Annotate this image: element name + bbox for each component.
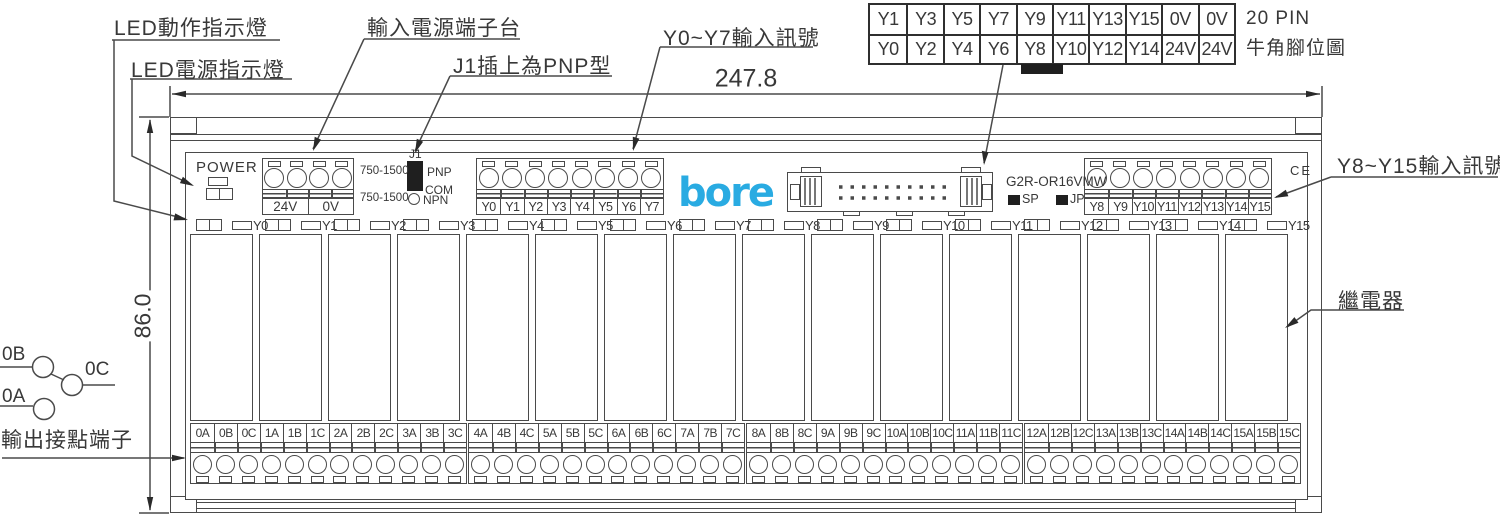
terminal-pad	[379, 476, 392, 483]
output-terminal: 1C	[306, 424, 329, 483]
output-terminal: 9B	[839, 424, 862, 483]
relay-box	[673, 234, 736, 421]
ce-mark: CE	[1290, 163, 1312, 178]
idc-bump-3	[948, 211, 965, 216]
output-terminal-label: 10A	[885, 424, 908, 443]
led-window	[1060, 221, 1080, 230]
pin-cell: 24V	[1198, 34, 1234, 63]
output-terminal: 0C	[237, 424, 260, 483]
terminal-pad	[196, 476, 209, 483]
output-terminal: 4A	[469, 424, 492, 483]
terminal-screw	[1001, 455, 1020, 474]
output-terminal-label: 0C	[237, 424, 260, 443]
terminal: Y12	[1178, 159, 1201, 214]
contact-no-circle	[34, 399, 55, 420]
terminal-screw	[1210, 455, 1229, 474]
output-terminal: 5A	[538, 424, 561, 483]
led-pair	[334, 219, 360, 231]
output-terminal: 5C	[584, 424, 607, 483]
terminal-clamp	[1048, 443, 1071, 453]
y8-y15-terminal-block: Y8 Y9 Y10 Y11 Y12	[1084, 158, 1272, 215]
terminal-pad	[657, 476, 670, 483]
pin-cell: Y6	[979, 34, 1015, 63]
terminal-screw	[932, 455, 951, 474]
output-terminal: 10A	[885, 424, 908, 483]
terminal-clamp	[331, 189, 354, 198]
pin-caption-line1: 20 PIN	[1246, 8, 1310, 30]
pin-table-notch	[1021, 64, 1063, 74]
output-terminal: 3B	[420, 424, 443, 483]
terminal-slot	[552, 161, 565, 167]
terminal-clamp	[1094, 443, 1117, 453]
terminal-clamp	[191, 443, 214, 453]
output-terminal: 2C	[374, 424, 397, 483]
terminal-pad	[265, 476, 278, 483]
terminal-pad	[333, 476, 346, 483]
led-pair	[472, 219, 498, 231]
terminal-clamp	[374, 443, 397, 453]
terminal-clamp	[839, 443, 862, 453]
pin-cell: Y12	[1088, 34, 1124, 63]
terminal-clamp	[907, 443, 930, 453]
pin-caption-line2: 牛角腳位圖	[1246, 33, 1346, 60]
led-pair	[1162, 219, 1188, 231]
terminal-label: Y7	[640, 198, 663, 214]
terminal: Y3	[547, 159, 570, 214]
terminal: Y15	[1248, 159, 1271, 214]
terminal-label: Y3	[547, 198, 570, 214]
input-power-terminal-block: 24V0V	[262, 158, 354, 215]
terminal-clamp	[1201, 189, 1224, 198]
terminal-clamp	[1085, 189, 1108, 198]
output-terminal-label: 2A	[329, 424, 352, 443]
led-window	[232, 221, 252, 230]
output-terminal: 5B	[561, 424, 584, 483]
output-terminal-label: 8B	[770, 424, 793, 443]
output-terminal: 7C	[721, 424, 744, 483]
led-window	[991, 221, 1011, 230]
terminal-clamp	[793, 443, 816, 453]
terminal-clamp	[1254, 443, 1277, 453]
terminal-screw	[376, 455, 395, 474]
output-terminal: 11B	[976, 424, 999, 483]
terminal-screw	[1073, 455, 1092, 474]
output-terminal-label: 12C	[1071, 424, 1094, 443]
terminal-screw	[955, 455, 974, 474]
pin-cell: Y7	[979, 5, 1015, 34]
power-led-lens	[208, 177, 228, 186]
output-terminal: 12A	[1025, 424, 1048, 483]
terminal-pad	[1213, 476, 1226, 483]
terminal-label: Y14	[1225, 198, 1248, 214]
terminal-screw	[772, 455, 791, 474]
terminal-slot	[1137, 161, 1150, 167]
led-window	[301, 221, 321, 230]
output-terminal-label: 13B	[1117, 424, 1140, 443]
output-terminal-label: 11A	[953, 424, 976, 443]
terminal-clamp	[1117, 443, 1140, 453]
output-terminal-label: 9A	[816, 424, 839, 443]
terminal-pad	[1053, 476, 1066, 483]
terminal-screw	[308, 455, 327, 474]
output-terminal: 8B	[770, 424, 793, 483]
output-terminal-label: 15C	[1277, 424, 1300, 443]
power-terminal-label: 24V	[263, 199, 308, 214]
idc-latch-right-hook	[982, 184, 992, 200]
terminal-clamp	[397, 443, 420, 453]
pin-table-row-2: Y0Y2Y4Y6Y8Y10Y12Y1424V24V	[870, 34, 1234, 63]
terminal-clamp	[237, 443, 260, 453]
output-terminal: 1B	[283, 424, 306, 483]
terminal-clamp	[547, 189, 570, 198]
callout-led-action: LED動作指示燈	[114, 12, 268, 42]
terminal-screw	[563, 455, 582, 474]
output-terminal-label: 11B	[976, 424, 999, 443]
output-terminal-group-3: 8A 8B 8C 9A 9B	[746, 423, 1023, 484]
relay-led-unit: Y12	[1016, 218, 1085, 233]
terminal-clamp	[747, 443, 770, 453]
led-window	[853, 221, 873, 230]
terminal-clamp	[1248, 189, 1271, 198]
j1-npn-socket	[408, 193, 420, 205]
relay-led-unit: Y0	[188, 218, 257, 233]
led-pair	[265, 219, 291, 231]
terminal	[308, 159, 331, 198]
terminal-clamp	[930, 443, 953, 453]
pin-cell: Y14	[1125, 34, 1161, 63]
output-terminal-label: 3C	[443, 424, 466, 443]
terminal-screw	[264, 168, 284, 188]
output-terminal-group-1: 0A 0B 0C 1A 1B	[190, 423, 467, 484]
j1-jumper-block	[407, 161, 423, 191]
terminal-screw	[262, 455, 281, 474]
terminal-pad	[402, 476, 415, 483]
terminal-screw	[332, 168, 352, 188]
output-terminal: 12C	[1071, 424, 1094, 483]
terminal-pad	[867, 476, 880, 483]
pin-cell: 0V	[1161, 5, 1197, 34]
terminal-slot	[313, 161, 326, 167]
terminal-clamp	[469, 443, 492, 453]
terminal-pad	[821, 476, 834, 483]
terminal-slot	[1206, 161, 1219, 167]
relay-led-unit: Y1	[257, 218, 326, 233]
terminal-clamp	[492, 443, 515, 453]
terminal-screw	[864, 455, 883, 474]
pin-cell: Y13	[1088, 5, 1124, 34]
terminal-screw	[1119, 455, 1138, 474]
terminal-screw	[654, 455, 673, 474]
output-terminal-label: 6B	[629, 424, 652, 443]
terminal-screw	[525, 168, 545, 188]
relay-box	[811, 234, 874, 421]
terminal-clamp	[999, 443, 1022, 453]
callout-led-power: LED電源指示燈	[131, 54, 285, 84]
jp-label: JP	[1070, 192, 1085, 206]
led-window	[715, 221, 735, 230]
output-terminal-label: 6C	[652, 424, 675, 443]
terminal-pad	[1190, 476, 1203, 483]
terminal-screw	[193, 455, 212, 474]
output-terminal: 6A	[607, 424, 630, 483]
output-terminal-label: 8A	[747, 424, 770, 443]
top-din-rail	[170, 134, 1322, 141]
led-window	[646, 221, 666, 230]
relay-box	[1018, 234, 1081, 421]
terminal-pad	[474, 476, 487, 483]
terminal-pad	[634, 476, 647, 483]
output-terminal-label: 10B	[907, 424, 930, 443]
terminal-screw	[309, 168, 329, 188]
led-label: Y15	[1288, 218, 1310, 233]
terminal-screw	[1226, 168, 1246, 188]
output-terminal-label: 1C	[306, 424, 329, 443]
terminal-screw	[353, 455, 372, 474]
terminal-clamp	[652, 443, 675, 453]
output-terminal-label: 5C	[584, 424, 607, 443]
j1-range-bottom: 750-1500	[360, 192, 409, 204]
corner-tab-top-right	[1295, 117, 1322, 134]
output-terminal-label: 6A	[607, 424, 630, 443]
pin-cell: Y2	[906, 34, 942, 63]
terminal-clamp	[953, 443, 976, 453]
terminal-screw	[978, 455, 997, 474]
output-terminal: 0B	[214, 424, 237, 483]
relay-led-unit: Y9	[809, 218, 878, 233]
output-terminal-label: 15A	[1231, 424, 1254, 443]
led-window	[1129, 221, 1149, 230]
terminal-pad	[356, 476, 369, 483]
y0-y7-terminal-block: Y0 Y1 Y2 Y3 Y4	[476, 158, 664, 215]
output-terminal: 14C	[1208, 424, 1231, 483]
terminal-clamp	[308, 189, 331, 198]
terminal-screw	[1203, 168, 1223, 188]
terminal-clamp	[721, 443, 744, 453]
output-terminal-label: 9B	[839, 424, 862, 443]
pin-cell: Y5	[943, 5, 979, 34]
relay-led-unit: Y8	[740, 218, 809, 233]
power-screw-row	[263, 159, 353, 198]
terminal-screw	[595, 168, 615, 188]
pin-cell: Y1	[870, 5, 906, 34]
terminal-screw	[1233, 455, 1252, 474]
bore-logo: bore	[678, 170, 773, 216]
terminal-label: Y12	[1178, 198, 1201, 214]
output-terminal: 2A	[329, 424, 352, 483]
terminal-pad	[611, 476, 624, 483]
callout-input-power: 輸入電源端子台	[367, 12, 521, 42]
relay-box	[880, 234, 943, 421]
output-terminal: 11A	[953, 424, 976, 483]
output-terminal-label: 14C	[1208, 424, 1231, 443]
output-terminal: 8C	[793, 424, 816, 483]
output-terminal-label: 14B	[1185, 424, 1208, 443]
output-terminal: 13C	[1140, 424, 1163, 483]
terminal-slot	[1090, 161, 1103, 167]
terminal-screw	[608, 455, 627, 474]
terminal-clamp	[617, 189, 640, 198]
terminal-screw	[1279, 455, 1298, 474]
led-pair	[1024, 219, 1050, 231]
terminal-pad	[844, 476, 857, 483]
terminal-clamp	[1185, 443, 1208, 453]
relay-box	[328, 234, 391, 421]
terminal: Y4	[570, 159, 593, 214]
terminal-clamp	[477, 189, 500, 198]
terminal-label: Y2	[524, 198, 547, 214]
power-terminal-label: 0V	[308, 199, 354, 214]
terminal-pad	[752, 476, 765, 483]
relay-led-unit: Y3	[395, 218, 464, 233]
terminal-screw	[886, 455, 905, 474]
contact-nc-label: 0B	[2, 344, 25, 366]
dim-width: 247.8	[715, 65, 778, 94]
terminal-screw	[1156, 168, 1176, 188]
output-terminal: 9A	[816, 424, 839, 483]
callout-y0-y7: Y0~Y7輸入訊號	[663, 22, 820, 52]
output-terminal: 4C	[515, 424, 538, 483]
terminal-screw	[548, 168, 568, 188]
terminal-screw	[818, 455, 837, 474]
led-window	[370, 221, 390, 230]
terminal-clamp	[1140, 443, 1163, 453]
terminal-screw	[471, 455, 490, 474]
output-terminal: 3A	[397, 424, 420, 483]
output-terminal: 7B	[698, 424, 721, 483]
pin-cell: Y0	[870, 34, 906, 63]
terminal-pad	[520, 476, 533, 483]
relay-led-unit: Y14	[1154, 218, 1223, 233]
terminal-label: Y5	[593, 198, 616, 214]
j1-label: J1	[409, 147, 422, 161]
terminal-clamp	[1277, 443, 1300, 453]
sp-led	[1008, 195, 1020, 205]
output-terminal: 1A	[260, 424, 283, 483]
sp-label: SP	[1022, 192, 1039, 206]
led-pair	[886, 219, 912, 231]
pin-table: Y1Y3Y5Y7Y9Y11Y13Y150V0V Y0Y2Y4Y6Y8Y10Y12…	[868, 3, 1236, 65]
terminal-slot	[1253, 161, 1266, 167]
terminal-slot	[505, 161, 518, 167]
terminal-pad	[311, 476, 324, 483]
contact-no-label: 0A	[2, 386, 25, 408]
output-terminal: 8A	[747, 424, 770, 483]
terminal-screw	[795, 455, 814, 474]
relay-led-unit: Y2	[326, 218, 395, 233]
terminal-label: Y10	[1132, 198, 1155, 214]
output-terminal: 0A	[191, 424, 214, 483]
terminal-screw	[618, 168, 638, 188]
jp-led	[1056, 195, 1068, 205]
terminal-clamp	[420, 443, 443, 453]
terminal-screw	[1249, 168, 1269, 188]
terminal-screw	[631, 455, 650, 474]
terminal-screw	[1180, 168, 1200, 188]
terminal-screw	[445, 455, 464, 474]
terminal-clamp	[976, 443, 999, 453]
terminal-screw	[479, 168, 499, 188]
terminal-label: Y11	[1155, 198, 1178, 214]
output-terminal-label: 12B	[1048, 424, 1071, 443]
dim-height: 86.0	[130, 291, 157, 342]
led-window	[922, 221, 942, 230]
terminal: Y1	[500, 159, 523, 214]
terminal-screw	[1256, 455, 1275, 474]
terminal-screw	[1096, 455, 1115, 474]
terminal: Y13	[1201, 159, 1224, 214]
led-pair	[817, 219, 843, 231]
output-terminal-label: 4C	[515, 424, 538, 443]
pin-cell: Y10	[1052, 34, 1088, 63]
terminal-slot	[1230, 161, 1243, 167]
terminal-clamp	[862, 443, 885, 453]
led-pair	[610, 219, 636, 231]
led-window	[439, 221, 459, 230]
led-pair	[403, 219, 429, 231]
terminal-slot	[1160, 161, 1173, 167]
idc-bump-2	[896, 211, 913, 216]
terminal-screw	[586, 455, 605, 474]
idc-latch-left-hook	[790, 184, 800, 200]
terminal-screw	[287, 168, 307, 188]
relay-row	[190, 234, 1288, 421]
output-terminal: 11C	[999, 424, 1022, 483]
terminal-pad	[288, 476, 301, 483]
terminal-screw	[1164, 455, 1183, 474]
terminal-clamp	[584, 443, 607, 453]
terminal-pad	[1167, 476, 1180, 483]
terminal-clamp	[283, 443, 306, 453]
terminal-pad	[726, 476, 739, 483]
terminal-clamp	[306, 443, 329, 453]
terminal: Y0	[477, 159, 500, 214]
terminal-clamp	[675, 443, 698, 453]
led-pair	[679, 219, 705, 231]
terminal-clamp	[698, 443, 721, 453]
output-terminal: 9C	[862, 424, 885, 483]
terminal-clamp	[214, 443, 237, 453]
idc-latch-left	[800, 176, 822, 207]
output-terminal-label: 8C	[793, 424, 816, 443]
terminal-pad	[703, 476, 716, 483]
pin-table-row-1: Y1Y3Y5Y7Y9Y11Y13Y150V0V	[870, 5, 1234, 34]
terminal-pad	[242, 476, 255, 483]
output-terminal-label: 2B	[351, 424, 374, 443]
terminal-clamp	[1231, 443, 1254, 453]
output-terminal-label: 10C	[930, 424, 953, 443]
terminal-pad	[497, 476, 510, 483]
model-label: G2R-OR16VMW	[1006, 174, 1107, 189]
pin-cell: 0V	[1198, 5, 1234, 34]
corner-tab-top-left	[170, 117, 197, 134]
terminal-screw	[1187, 455, 1206, 474]
output-terminal-label: 2C	[374, 424, 397, 443]
terminal: Y5	[593, 159, 616, 214]
terminal-clamp	[515, 443, 538, 453]
terminal-slot	[290, 161, 303, 167]
terminal-pad	[775, 476, 788, 483]
terminal: Y11	[1155, 159, 1178, 214]
output-terminal: 6B	[629, 424, 652, 483]
terminal-clamp	[263, 189, 286, 198]
terminal-pad	[1004, 476, 1017, 483]
led-window	[1267, 221, 1287, 230]
terminal-screw	[540, 455, 559, 474]
terminal-clamp	[1108, 189, 1131, 198]
led-pair	[196, 219, 222, 231]
terminal-label: Y1	[500, 198, 523, 214]
relay-box	[949, 234, 1012, 421]
